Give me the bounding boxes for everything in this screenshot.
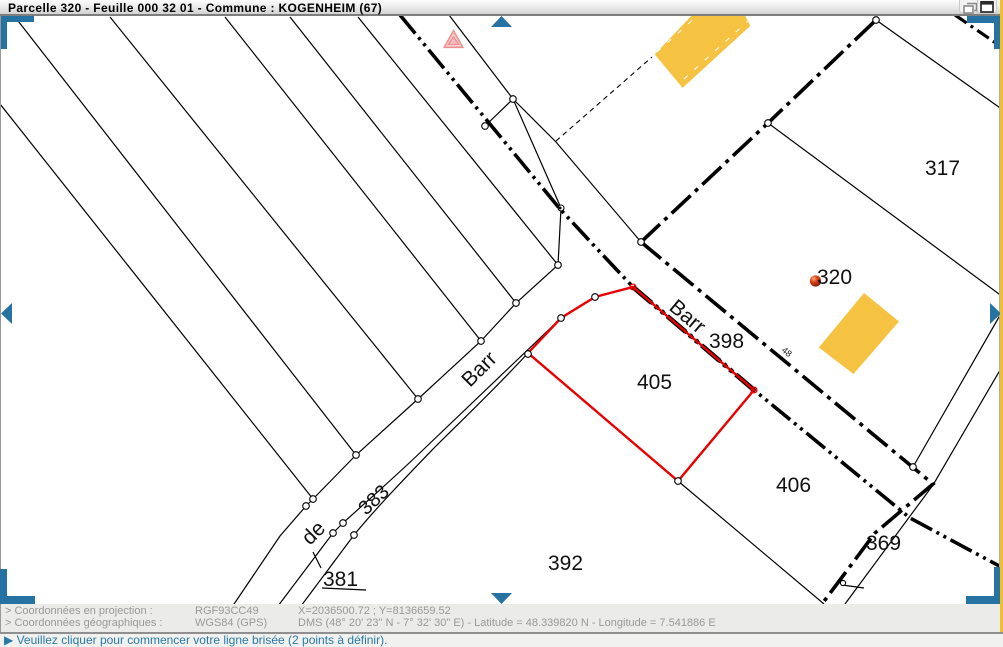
svg-text:317: 317 (925, 157, 960, 180)
svg-text:369: 369 (866, 532, 901, 555)
svg-text:381: 381 (323, 568, 358, 591)
svg-text:320: 320 (817, 266, 852, 289)
svg-text:406: 406 (776, 474, 811, 497)
svg-text:405: 405 (637, 371, 672, 394)
svg-text:398: 398 (709, 330, 744, 353)
svg-text:392: 392 (548, 552, 583, 575)
